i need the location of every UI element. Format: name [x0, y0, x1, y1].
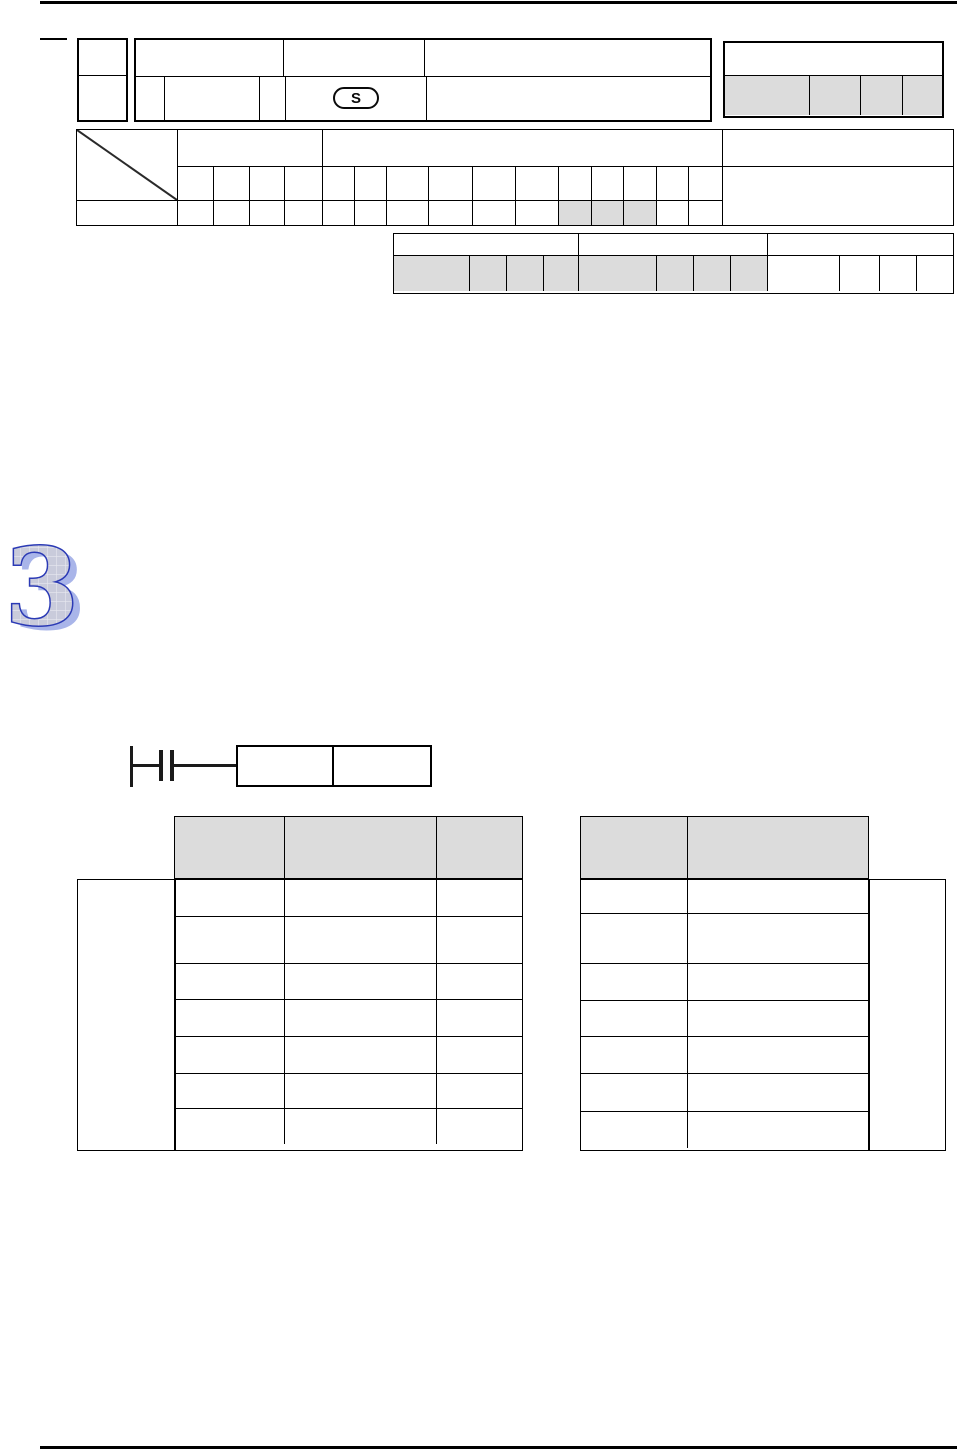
table-cell	[436, 964, 522, 999]
diagonal-slash-icon	[77, 130, 177, 200]
table-row	[394, 234, 953, 256]
table-row	[175, 1108, 522, 1144]
applicable-models-table	[76, 129, 954, 226]
table-cell	[516, 167, 559, 201]
s-operand-label: S	[351, 90, 361, 107]
table-cell	[436, 917, 522, 963]
table-cell	[840, 256, 880, 291]
table-cell	[687, 914, 868, 963]
table-cell	[175, 880, 284, 916]
table-cell	[592, 167, 624, 201]
table-row	[175, 963, 522, 999]
table-row	[581, 1073, 868, 1111]
table-cell	[473, 167, 516, 201]
table-cell	[687, 964, 868, 1000]
availability-title-cell	[725, 43, 942, 75]
device-table-right-stub	[869, 879, 946, 1151]
instruction-operand-cell	[334, 747, 430, 785]
shaded-cell	[394, 256, 470, 291]
availability-box	[723, 41, 944, 118]
table-row	[175, 916, 522, 963]
table-cell	[355, 167, 387, 201]
shaded-cell	[624, 201, 657, 225]
table-cell	[259, 77, 285, 120]
table-cell	[387, 167, 429, 201]
table-cell	[689, 167, 723, 201]
table-cell	[284, 880, 436, 916]
table-row	[394, 256, 953, 291]
header-cell	[687, 817, 868, 878]
table-cell	[175, 1074, 284, 1108]
table-cell	[581, 1037, 687, 1073]
table-cell	[689, 201, 723, 225]
device-table-right-header	[580, 816, 869, 879]
table-cell	[323, 167, 355, 201]
instruction-name-cell	[238, 747, 334, 785]
shaded-cell	[507, 256, 544, 291]
header-cell	[175, 817, 284, 878]
model-subcolumn-row	[178, 167, 723, 201]
table-cell	[214, 201, 250, 225]
table-cell	[164, 77, 259, 120]
header-cell	[436, 817, 522, 878]
availability-shaded-row	[725, 75, 942, 115]
table-cell	[136, 77, 164, 120]
table-cell	[768, 256, 840, 291]
table-row	[581, 1111, 868, 1148]
table-row	[175, 999, 522, 1036]
note-body-cell	[723, 167, 953, 223]
diagonal-header-cell	[77, 130, 178, 201]
shaded-cell	[725, 76, 809, 115]
table-cell	[175, 1000, 284, 1036]
table-cell	[657, 201, 689, 225]
shaded-cell	[544, 256, 579, 291]
diagonal-footer-cell	[77, 201, 178, 225]
range-group-cell	[768, 234, 953, 256]
table-row	[581, 880, 868, 913]
table-cell	[284, 1074, 436, 1108]
table-cell	[323, 201, 355, 225]
table-cell	[657, 167, 689, 201]
table-cell	[250, 201, 285, 225]
table-cell	[175, 917, 284, 963]
table-cell	[429, 167, 473, 201]
models-note-section	[723, 130, 953, 225]
shaded-cell	[731, 256, 768, 291]
table-cell	[175, 964, 284, 999]
table-row	[175, 880, 522, 916]
table-cell	[284, 964, 436, 999]
device-table-left-stub	[77, 879, 176, 1151]
table-cell	[436, 880, 522, 916]
device-table-right-body	[580, 879, 869, 1151]
contact-bar-left	[159, 750, 163, 781]
table-cell	[581, 964, 687, 1000]
shaded-cell	[592, 201, 624, 225]
table-cell	[175, 1109, 284, 1144]
table-cell	[687, 1037, 868, 1073]
table-cell	[581, 1112, 687, 1148]
table-cell	[687, 1112, 868, 1148]
table-cell	[426, 77, 710, 120]
shaded-cell	[579, 256, 657, 291]
table-cell	[178, 167, 214, 201]
model-group-cell	[323, 130, 723, 167]
shaded-cell	[902, 76, 942, 115]
table-cell	[687, 1001, 868, 1036]
table-cell	[624, 167, 657, 201]
table-row	[136, 40, 710, 76]
table-cell	[284, 1000, 436, 1036]
s-operand-marker: S	[333, 87, 379, 109]
api-number-box	[77, 38, 128, 122]
table-cell	[473, 201, 516, 225]
rung-wire	[133, 764, 159, 767]
model-group-header-row	[178, 130, 723, 167]
instruction-block	[236, 745, 432, 787]
table-row	[581, 913, 868, 963]
model-group-cell	[178, 130, 323, 167]
table-cell	[436, 1037, 522, 1073]
operand-cell: S	[285, 77, 426, 120]
table-cell	[581, 880, 687, 913]
chapter-number-numeral: 3	[5, 524, 79, 649]
operand-range-table	[393, 233, 954, 294]
chapter-number-graphic: 3 3	[2, 538, 102, 638]
table-cell	[136, 40, 283, 76]
model-bottom-row	[178, 201, 723, 225]
table-row: S	[136, 76, 710, 120]
table-cell	[284, 1109, 436, 1144]
range-group-cell	[579, 234, 768, 256]
range-group-cell	[394, 234, 579, 256]
table-cell	[687, 880, 868, 913]
table-cell	[429, 201, 473, 225]
table-cell	[436, 1074, 522, 1108]
shaded-cell	[559, 201, 592, 225]
shaded-cell	[657, 256, 694, 291]
table-row	[175, 1036, 522, 1073]
table-cell	[687, 1074, 868, 1111]
table-cell	[214, 167, 250, 201]
table-cell	[436, 1109, 522, 1144]
table-cell	[516, 201, 559, 225]
table-cell	[175, 1037, 284, 1073]
note-header-cell	[723, 130, 953, 167]
table-cell	[178, 201, 214, 225]
shaded-cell	[694, 256, 731, 291]
table-cell	[424, 40, 710, 76]
table-cell	[355, 201, 387, 225]
header-cell	[284, 817, 436, 878]
table-cell	[581, 914, 687, 963]
table-cell	[436, 1000, 522, 1036]
table-cell	[581, 1001, 687, 1036]
device-table-left	[77, 816, 523, 1151]
manual-page: S	[0, 0, 957, 1453]
device-table-right	[580, 816, 946, 1151]
table-cell	[250, 167, 285, 201]
table-row	[581, 1036, 868, 1073]
table-cell	[559, 167, 592, 201]
rung-wire	[174, 764, 236, 767]
table-row	[175, 1073, 522, 1108]
horizontal-rule-bottom	[40, 1446, 957, 1449]
shaded-cell	[470, 256, 507, 291]
table-row	[581, 963, 868, 1000]
ladder-diagram	[125, 740, 445, 792]
table-cell	[581, 1074, 687, 1111]
table-cell	[387, 201, 429, 225]
table-row	[581, 1000, 868, 1036]
shaded-cell	[809, 76, 860, 115]
table-cell	[285, 167, 323, 201]
table-cell	[285, 201, 323, 225]
header-cell	[581, 817, 687, 878]
instruction-format-table: S	[134, 38, 712, 122]
shaded-cell	[860, 76, 902, 115]
device-table-left-body	[174, 879, 523, 1151]
api-number-cell	[79, 40, 126, 76]
table-cell	[880, 256, 917, 291]
table-cell	[284, 1037, 436, 1073]
horizontal-rule-top	[40, 1, 957, 4]
table-cell	[284, 917, 436, 963]
table-cell	[283, 40, 424, 76]
device-table-left-header	[174, 816, 523, 879]
header-underline-segment	[40, 38, 67, 40]
api-mnemonic-cell	[79, 76, 126, 119]
table-cell	[917, 256, 953, 291]
